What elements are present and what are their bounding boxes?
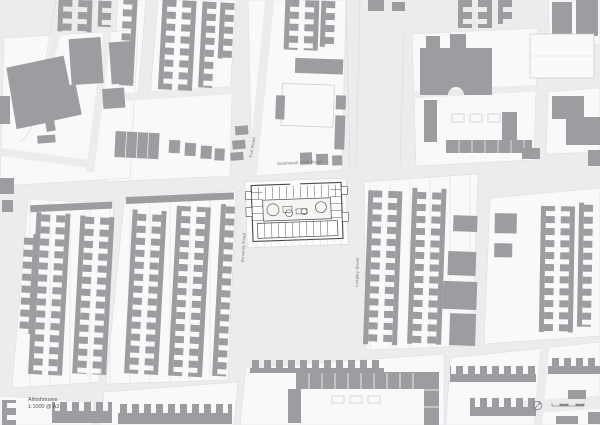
site-plan-map [0,0,600,425]
almshouse-site-plan [245,178,349,248]
site-plan-sheet: Southwark Park Road Reverdy Road Longley… [0,0,600,425]
